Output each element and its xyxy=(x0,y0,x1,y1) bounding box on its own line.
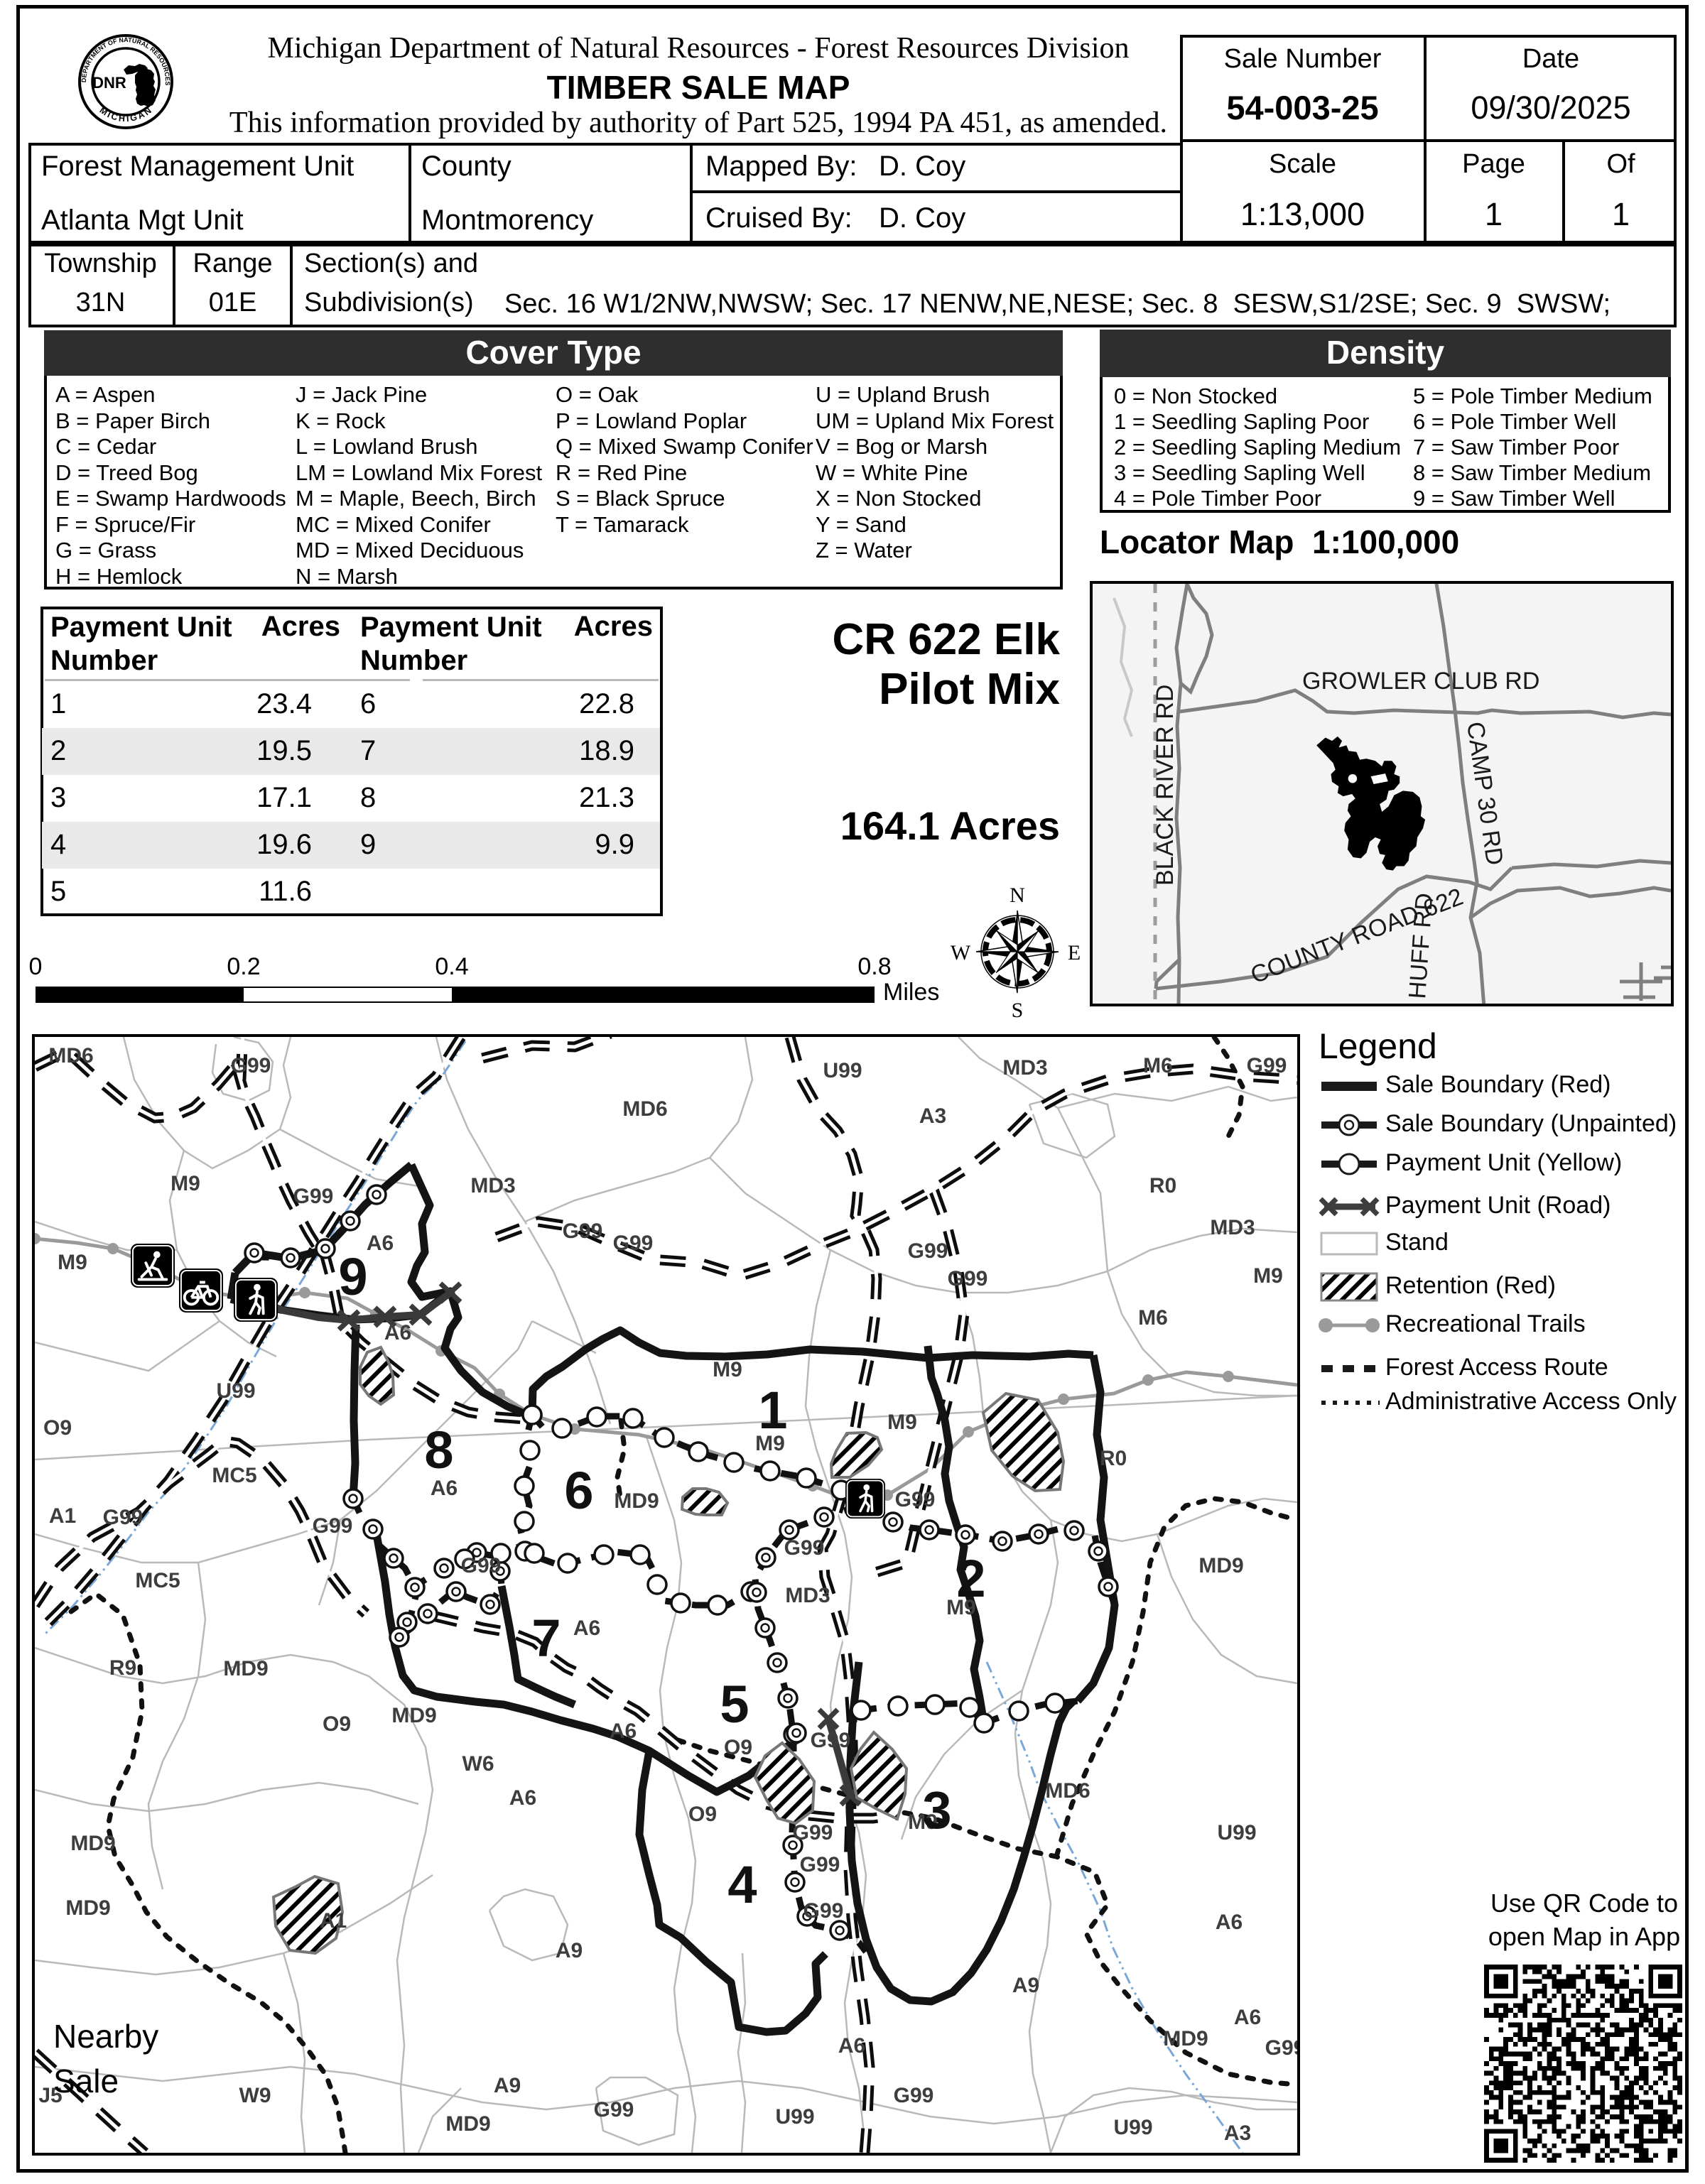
svg-text:G99: G99 xyxy=(103,1506,144,1529)
svg-text:5: 5 xyxy=(720,1675,749,1734)
svg-text:MD9: MD9 xyxy=(1163,2027,1208,2050)
svg-text:G99: G99 xyxy=(1247,1054,1287,1077)
svg-text:O9: O9 xyxy=(724,1736,752,1759)
svg-text:G99: G99 xyxy=(594,2098,634,2121)
svg-text:G99: G99 xyxy=(793,1821,833,1845)
svg-text:2: 2 xyxy=(956,1549,985,1608)
svg-text:BLACK RIVER RD: BLACK RIVER RD xyxy=(1152,685,1179,886)
svg-text:O9: O9 xyxy=(688,1803,717,1826)
svg-text:R9: R9 xyxy=(109,1656,136,1680)
svg-text:A6: A6 xyxy=(384,1321,411,1344)
svg-text:U99: U99 xyxy=(1113,2116,1152,2139)
svg-text:G99: G99 xyxy=(563,1219,603,1243)
svg-text:G99: G99 xyxy=(613,1232,654,1255)
svg-text:U99: U99 xyxy=(775,2105,814,2129)
svg-text:MC5: MC5 xyxy=(135,1569,180,1592)
svg-text:R0: R0 xyxy=(1149,1174,1176,1197)
svg-text:M9: M9 xyxy=(1253,1264,1283,1288)
svg-text:G99: G99 xyxy=(895,1488,936,1511)
svg-text:MD9: MD9 xyxy=(70,1832,115,1855)
svg-text:G99: G99 xyxy=(803,1899,844,1923)
svg-text:A3: A3 xyxy=(919,1104,946,1128)
svg-text:G99: G99 xyxy=(313,1514,353,1538)
svg-text:A6: A6 xyxy=(1216,1911,1243,1934)
svg-text:A6: A6 xyxy=(509,1786,536,1810)
svg-text:A6: A6 xyxy=(610,1720,637,1743)
svg-text:MC5: MC5 xyxy=(212,1464,256,1487)
svg-text:S: S xyxy=(1012,999,1024,1022)
svg-text:3: 3 xyxy=(922,1781,951,1840)
svg-text:G99: G99 xyxy=(1265,2036,1297,2060)
svg-text:A9: A9 xyxy=(556,1939,583,1962)
svg-text:MD9: MD9 xyxy=(1198,1554,1243,1577)
svg-text:E: E xyxy=(1068,941,1081,965)
svg-text:O9: O9 xyxy=(323,1712,351,1736)
svg-text:G99: G99 xyxy=(784,1536,825,1560)
svg-text:R0: R0 xyxy=(1100,1447,1127,1470)
svg-text:U99: U99 xyxy=(1217,1821,1256,1845)
svg-text:7: 7 xyxy=(531,1609,561,1668)
svg-text:9: 9 xyxy=(338,1247,367,1306)
svg-text:M6: M6 xyxy=(1138,1306,1168,1330)
svg-text:A6: A6 xyxy=(431,1477,458,1500)
svg-text:A3: A3 xyxy=(1224,2121,1251,2145)
svg-text:MD3: MD3 xyxy=(785,1584,830,1607)
svg-text:A9: A9 xyxy=(494,2074,521,2097)
svg-text:MD6: MD6 xyxy=(622,1097,667,1121)
svg-text:MD3: MD3 xyxy=(1210,1216,1255,1239)
svg-text:G99: G99 xyxy=(293,1185,334,1208)
svg-text:A1: A1 xyxy=(320,1909,347,1933)
svg-text:A6: A6 xyxy=(1234,2006,1261,2029)
svg-text:U99: U99 xyxy=(216,1379,255,1403)
svg-text:U99: U99 xyxy=(823,1059,862,1082)
svg-text:MD3: MD3 xyxy=(470,1174,515,1197)
svg-text:4: 4 xyxy=(727,1855,757,1914)
svg-text:G99: G99 xyxy=(231,1054,271,1077)
svg-text:MD9: MD9 xyxy=(445,2112,490,2136)
svg-text:A6: A6 xyxy=(838,2034,865,2058)
svg-text:W6: W6 xyxy=(462,1752,494,1776)
svg-text:A9: A9 xyxy=(1012,1974,1039,1997)
svg-text:MD6: MD6 xyxy=(1045,1779,1090,1803)
svg-text:8: 8 xyxy=(424,1420,453,1479)
svg-text:M9: M9 xyxy=(887,1411,917,1434)
svg-text:M9: M9 xyxy=(713,1358,742,1381)
svg-text:W9: W9 xyxy=(239,2084,271,2107)
svg-text:G99: G99 xyxy=(461,1554,502,1577)
svg-text:M9: M9 xyxy=(170,1172,200,1195)
svg-text:W: W xyxy=(951,941,971,965)
svg-text:GROWLER CLUB RD: GROWLER CLUB RD xyxy=(1302,668,1539,695)
svg-text:MD9: MD9 xyxy=(391,1704,436,1727)
svg-text:MD3: MD3 xyxy=(1002,1056,1047,1080)
svg-text:G99: G99 xyxy=(894,2084,934,2107)
svg-text:M6: M6 xyxy=(1143,1054,1173,1077)
svg-text:O9: O9 xyxy=(43,1416,72,1440)
svg-text:A6: A6 xyxy=(573,1617,600,1640)
svg-text:1: 1 xyxy=(758,1381,787,1440)
svg-text:N: N xyxy=(1010,884,1025,907)
svg-text:A1: A1 xyxy=(49,1504,76,1528)
svg-text:G99: G99 xyxy=(908,1239,948,1263)
svg-text:MD9: MD9 xyxy=(65,1896,110,1920)
svg-text:MD6: MD6 xyxy=(48,1044,93,1067)
svg-text:6: 6 xyxy=(564,1461,593,1520)
svg-text:G99: G99 xyxy=(948,1267,988,1291)
svg-text:A6: A6 xyxy=(367,1232,394,1255)
svg-text:G99: G99 xyxy=(800,1853,840,1876)
svg-text:MD9: MD9 xyxy=(614,1489,659,1513)
svg-text:MD9: MD9 xyxy=(223,1657,268,1680)
svg-text:G99: G99 xyxy=(811,1729,851,1752)
svg-text:M9: M9 xyxy=(58,1251,87,1274)
